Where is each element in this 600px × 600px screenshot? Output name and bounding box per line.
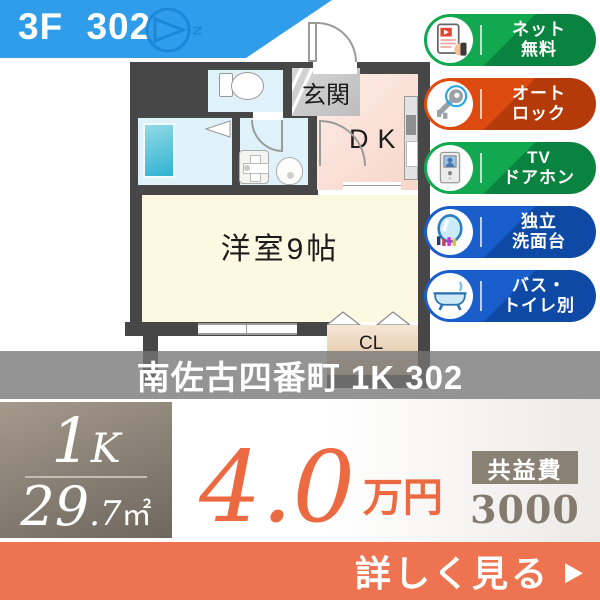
main-room-label: 洋室9帖	[221, 224, 340, 268]
bathtub	[143, 123, 175, 178]
room-number-label: 3F 302	[18, 6, 151, 48]
entrance-door-leaf	[308, 22, 317, 62]
kitchen-counter	[404, 96, 418, 180]
floorplan: DK 玄関 洋室9帖 CL	[95, 20, 432, 400]
fee-label: 共益費	[472, 451, 578, 484]
washbasin	[276, 157, 303, 185]
room-main: 洋室9帖	[142, 195, 418, 322]
dk-sliding-door	[343, 182, 401, 190]
property-title: 南佐古四番町 1K 302	[137, 351, 464, 399]
entrance-area: 玄関	[292, 68, 360, 116]
property-title-bar: 南佐古四番町 1K 302	[0, 351, 600, 399]
dk-door-leaf	[319, 120, 321, 166]
badge-label: バス・トイレ別	[482, 276, 596, 316]
entrance-door-gap	[313, 62, 357, 74]
rent-unit: 万円	[363, 465, 443, 523]
doorphone-icon	[427, 145, 473, 191]
badge-label: オートロック	[482, 84, 596, 124]
entrance-door-arc	[317, 22, 357, 62]
bathtub-icon	[427, 273, 473, 319]
details-button-label: 詳しく見る	[355, 545, 550, 597]
details-button[interactable]: 詳しく見る ▶	[0, 542, 600, 600]
bath-door-triangle	[205, 120, 231, 138]
badge-internet-free: ネット無料	[424, 14, 596, 66]
summary-section: 1K 29.7㎡ 4.0 万円 共益費 3000円	[0, 399, 600, 542]
layout-value: 1K	[0, 410, 172, 472]
badge-independent-washstand: 独立洗面台	[424, 206, 596, 258]
entrance-label: 玄関	[302, 75, 350, 110]
badge-label: 独立洗面台	[482, 212, 596, 252]
rent-price: 4.0 万円	[178, 407, 464, 535]
right-arrow-icon: ▶	[565, 556, 583, 587]
wall-left	[130, 62, 142, 336]
wall-mid-horizontal	[130, 185, 318, 195]
closet-folding-doors	[327, 311, 410, 325]
key-icon	[427, 81, 473, 127]
compass-icon: N	[138, 3, 218, 57]
toilet-bowl	[231, 72, 264, 100]
area-value: 29.7㎡	[0, 480, 172, 534]
badge-label: ネット無料	[482, 20, 596, 60]
washing-machine	[239, 150, 269, 184]
badge-separate-bath-toilet: バス・トイレ別	[424, 270, 596, 322]
washroom-door-gap	[253, 112, 283, 120]
internet-icon	[427, 17, 473, 63]
svg-text:N: N	[190, 26, 205, 35]
property-listing-card: DK 玄関 洋室9帖 CL	[0, 0, 600, 600]
washroom-door-leaf	[281, 120, 283, 152]
rent-value: 4.0	[199, 442, 355, 535]
window-south	[198, 323, 297, 335]
washstand-icon	[427, 209, 473, 255]
badge-label: TVドアホン	[482, 148, 596, 188]
layout-area-box: 1K 29.7㎡	[0, 402, 172, 538]
badge-tv-doorphone: TVドアホン	[424, 142, 596, 194]
badge-auto-lock: オートロック	[424, 78, 596, 130]
wall-toilet-top	[208, 62, 291, 70]
